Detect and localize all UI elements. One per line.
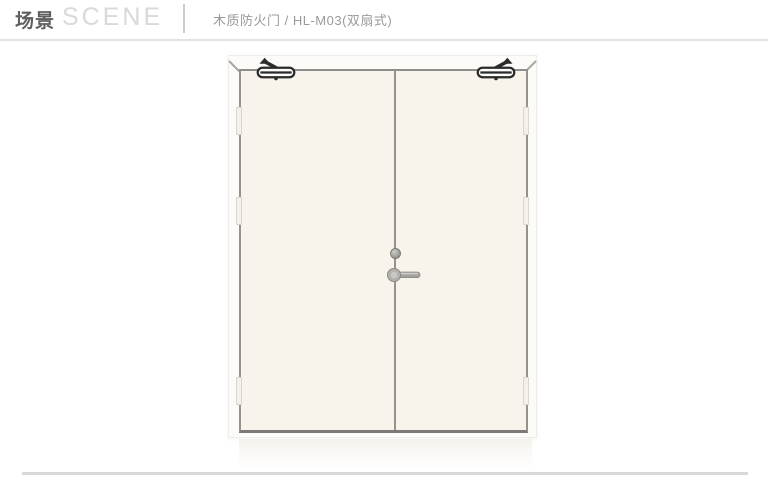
hinge-icon — [523, 377, 529, 405]
door-frame-opening — [239, 69, 528, 433]
door-leaf-left — [241, 71, 394, 430]
door-closer-icon — [476, 56, 516, 82]
section-title-en: SCENE — [62, 3, 163, 32]
hinge-icon — [523, 107, 529, 135]
hinge-icon — [236, 377, 242, 405]
hinge-icon — [523, 197, 529, 225]
hinge-icon — [236, 197, 242, 225]
door-leaf-right — [396, 71, 526, 430]
footer-divider — [22, 472, 748, 475]
fire-door-illustration — [228, 55, 537, 438]
page-header: 场景 SCENE 木质防火门 / HL-M03(双扇式) — [0, 0, 768, 41]
floor-reflection — [239, 439, 532, 469]
cylinder-lock-icon — [390, 248, 401, 259]
section-title-zh: 场景 — [15, 6, 55, 33]
lever-handle-icon — [386, 267, 422, 283]
header-vertical-divider — [183, 4, 185, 33]
hinge-icon — [236, 107, 242, 135]
door-closer-icon — [256, 56, 296, 82]
product-subtitle: 木质防火门 / HL-M03(双扇式) — [213, 10, 392, 29]
